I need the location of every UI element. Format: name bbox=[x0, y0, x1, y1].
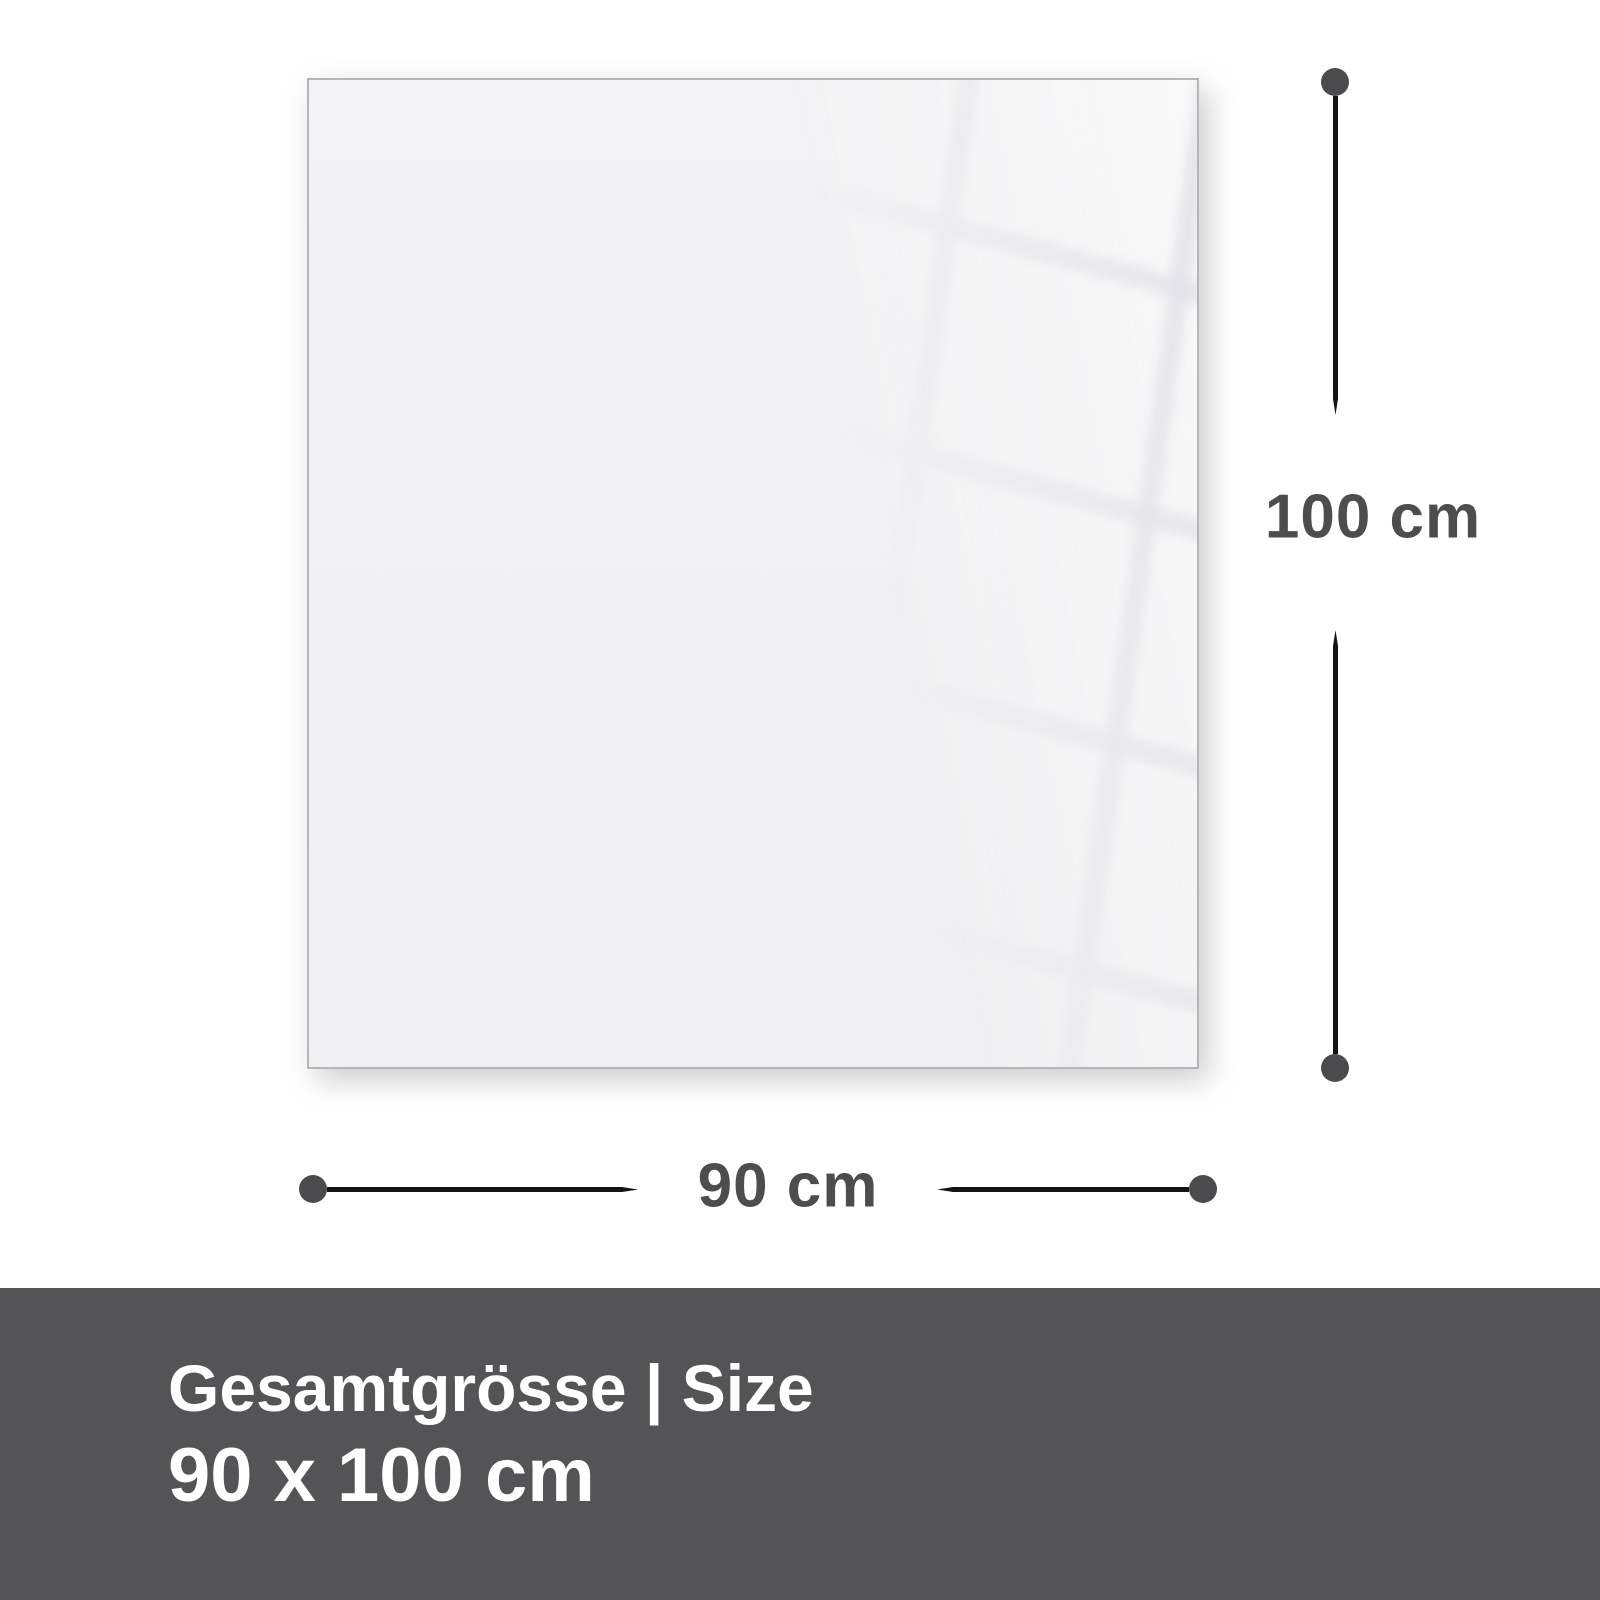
panel-gloss-reflection bbox=[544, 78, 1199, 1069]
width-dimension-line-left bbox=[327, 1187, 638, 1192]
height-dimension-top-dot-icon bbox=[1321, 68, 1349, 96]
footer-title: Gesamtgrösse | Size bbox=[168, 1350, 814, 1426]
product-dimension-diagram: 100 cm 90 cm Gesamtgrösse | Size 90 x 10… bbox=[0, 0, 1600, 1600]
footer-size-value: 90 x 100 cm bbox=[168, 1432, 595, 1519]
size-footer-bar: Gesamtgrösse | Size 90 x 100 cm bbox=[0, 1288, 1600, 1600]
width-dimension-right-dot-icon bbox=[1189, 1175, 1217, 1203]
height-dimension-bottom-dot-icon bbox=[1321, 1054, 1349, 1082]
width-dimension-label: 90 cm bbox=[698, 1151, 879, 1222]
product-panel bbox=[307, 78, 1199, 1069]
height-dimension-line-upper bbox=[1333, 96, 1338, 415]
height-dimension-line-lower bbox=[1333, 630, 1338, 1054]
height-dimension-label: 100 cm bbox=[1265, 482, 1481, 553]
width-dimension-line-right bbox=[937, 1187, 1189, 1192]
width-dimension-left-dot-icon bbox=[299, 1175, 327, 1203]
